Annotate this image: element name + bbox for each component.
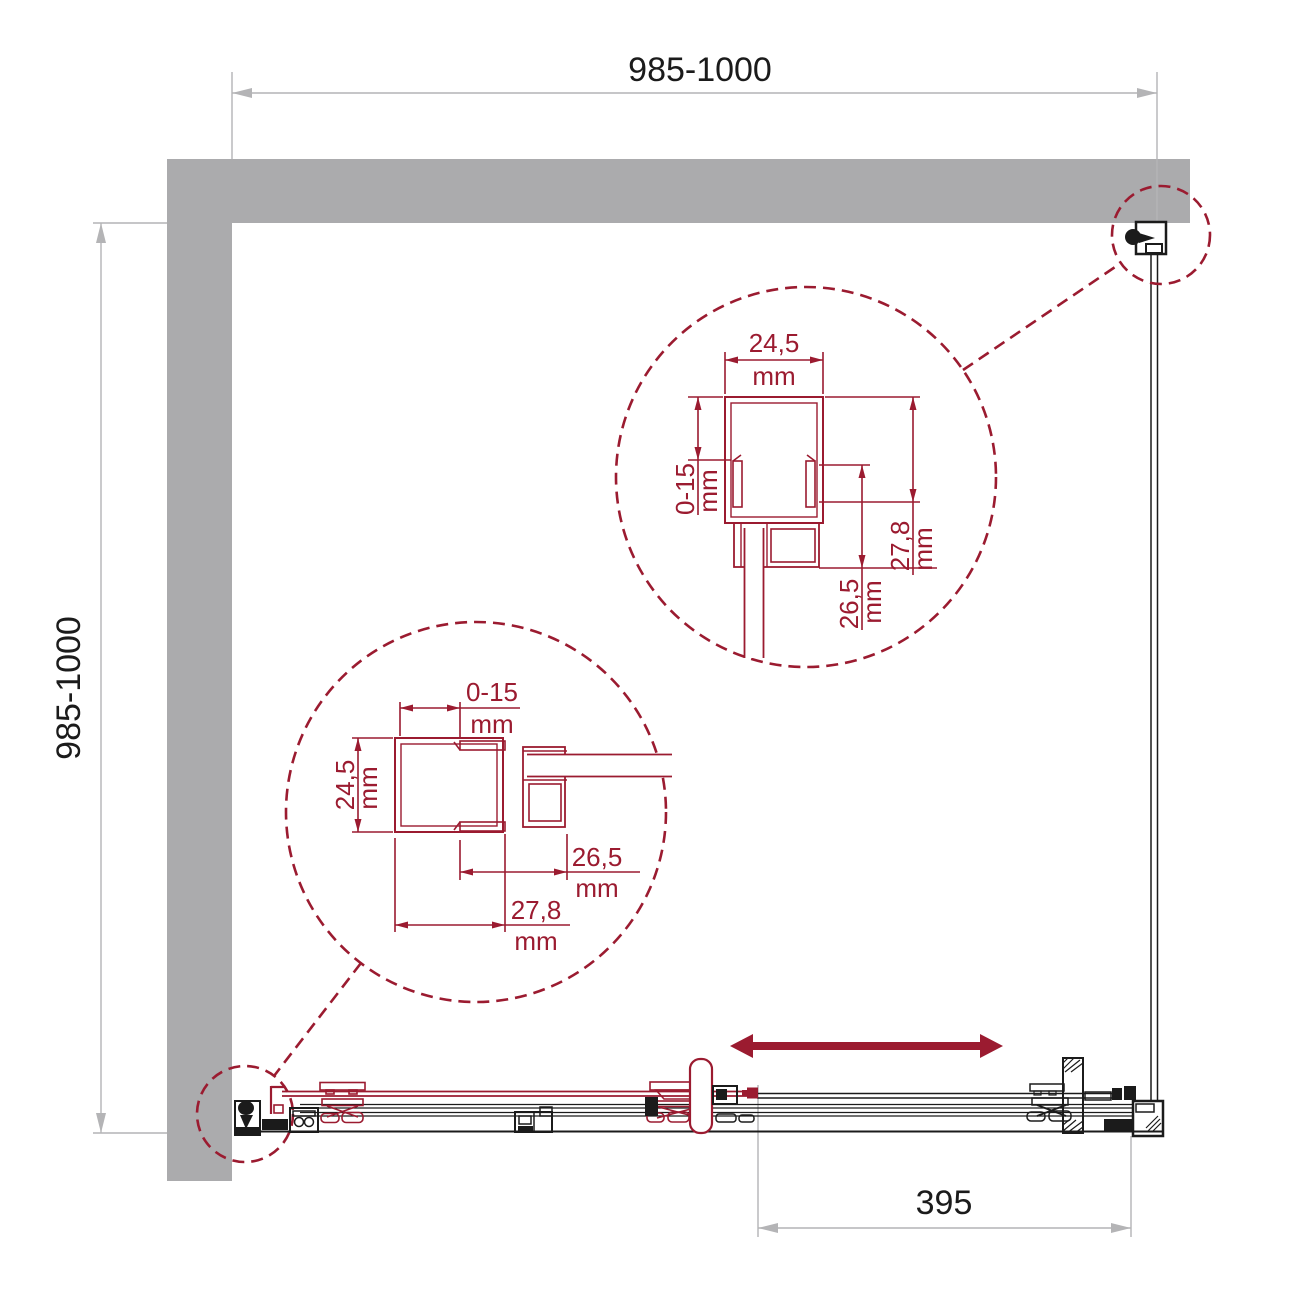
clip-left <box>733 461 742 507</box>
door-end-cap <box>747 1088 758 1099</box>
arrowhead <box>1111 1223 1131 1233</box>
lower-adjust-value: 0-15 <box>466 677 518 707</box>
technical-drawing-canvas: 985-1000 985-1000 395 <box>0 0 1300 1300</box>
wall-profile-inner <box>731 403 817 517</box>
top-wall <box>167 159 1190 223</box>
left-depth-label: 985-1000 <box>50 616 88 760</box>
lower-inner-unit: mm <box>575 873 618 903</box>
top-width-label: 985-1000 <box>628 51 772 89</box>
upper-profile-detail: 24,5 mm 0-15 mm 27,8 mm 26,5 mm <box>670 328 938 658</box>
opening-label: 395 <box>916 1184 973 1222</box>
arrowhead <box>758 1223 778 1233</box>
lower-inner-value: 26,5 <box>572 842 623 872</box>
upper-width-value: 24,5 <box>749 328 800 358</box>
mid-guide-bracket <box>515 1107 552 1132</box>
detail-callouts <box>197 186 1210 1162</box>
side-glass-panel <box>1151 254 1158 1101</box>
lower-width-unit: mm <box>353 766 383 809</box>
upper-inner-unit: mm <box>857 580 887 623</box>
arrowhead <box>96 223 106 243</box>
leader-line-lower <box>274 963 361 1076</box>
walls <box>167 159 1190 1181</box>
lower-adjust-unit: mm <box>470 709 513 739</box>
left-dimension-lines <box>93 223 167 1133</box>
lower-depth-value: 27,8 <box>511 895 562 925</box>
upper-adjust-unit: mm <box>693 469 723 512</box>
clip-top <box>460 741 505 750</box>
upper-width-unit: mm <box>752 361 795 391</box>
slide-direction-arrow-icon <box>730 1034 1003 1058</box>
top-right-wall-profile <box>1125 222 1166 254</box>
lower-profile-detail: 0-15 mm 24,5 mm 26,5 mm 27,8 mm <box>330 677 672 956</box>
wall-profile-inner <box>401 744 497 826</box>
arrowhead <box>1137 88 1157 98</box>
handle-post <box>690 1059 712 1133</box>
upper-depth-unit: mm <box>908 527 938 570</box>
left-wall <box>167 159 232 1181</box>
right-roller-unit <box>1027 1058 1083 1133</box>
leader-line-upper <box>963 263 1121 370</box>
shower-enclosure-plan: 985-1000 985-1000 395 <box>0 0 1300 1300</box>
clip-right <box>806 461 815 507</box>
arrowhead <box>96 1113 106 1133</box>
wall-profile-outer <box>725 397 823 523</box>
bottom-track-assembly <box>234 1058 1163 1136</box>
center-clamp <box>645 1097 658 1116</box>
arrowhead <box>232 88 252 98</box>
wall-profile-outer <box>395 738 503 832</box>
lower-depth-unit: mm <box>514 926 557 956</box>
